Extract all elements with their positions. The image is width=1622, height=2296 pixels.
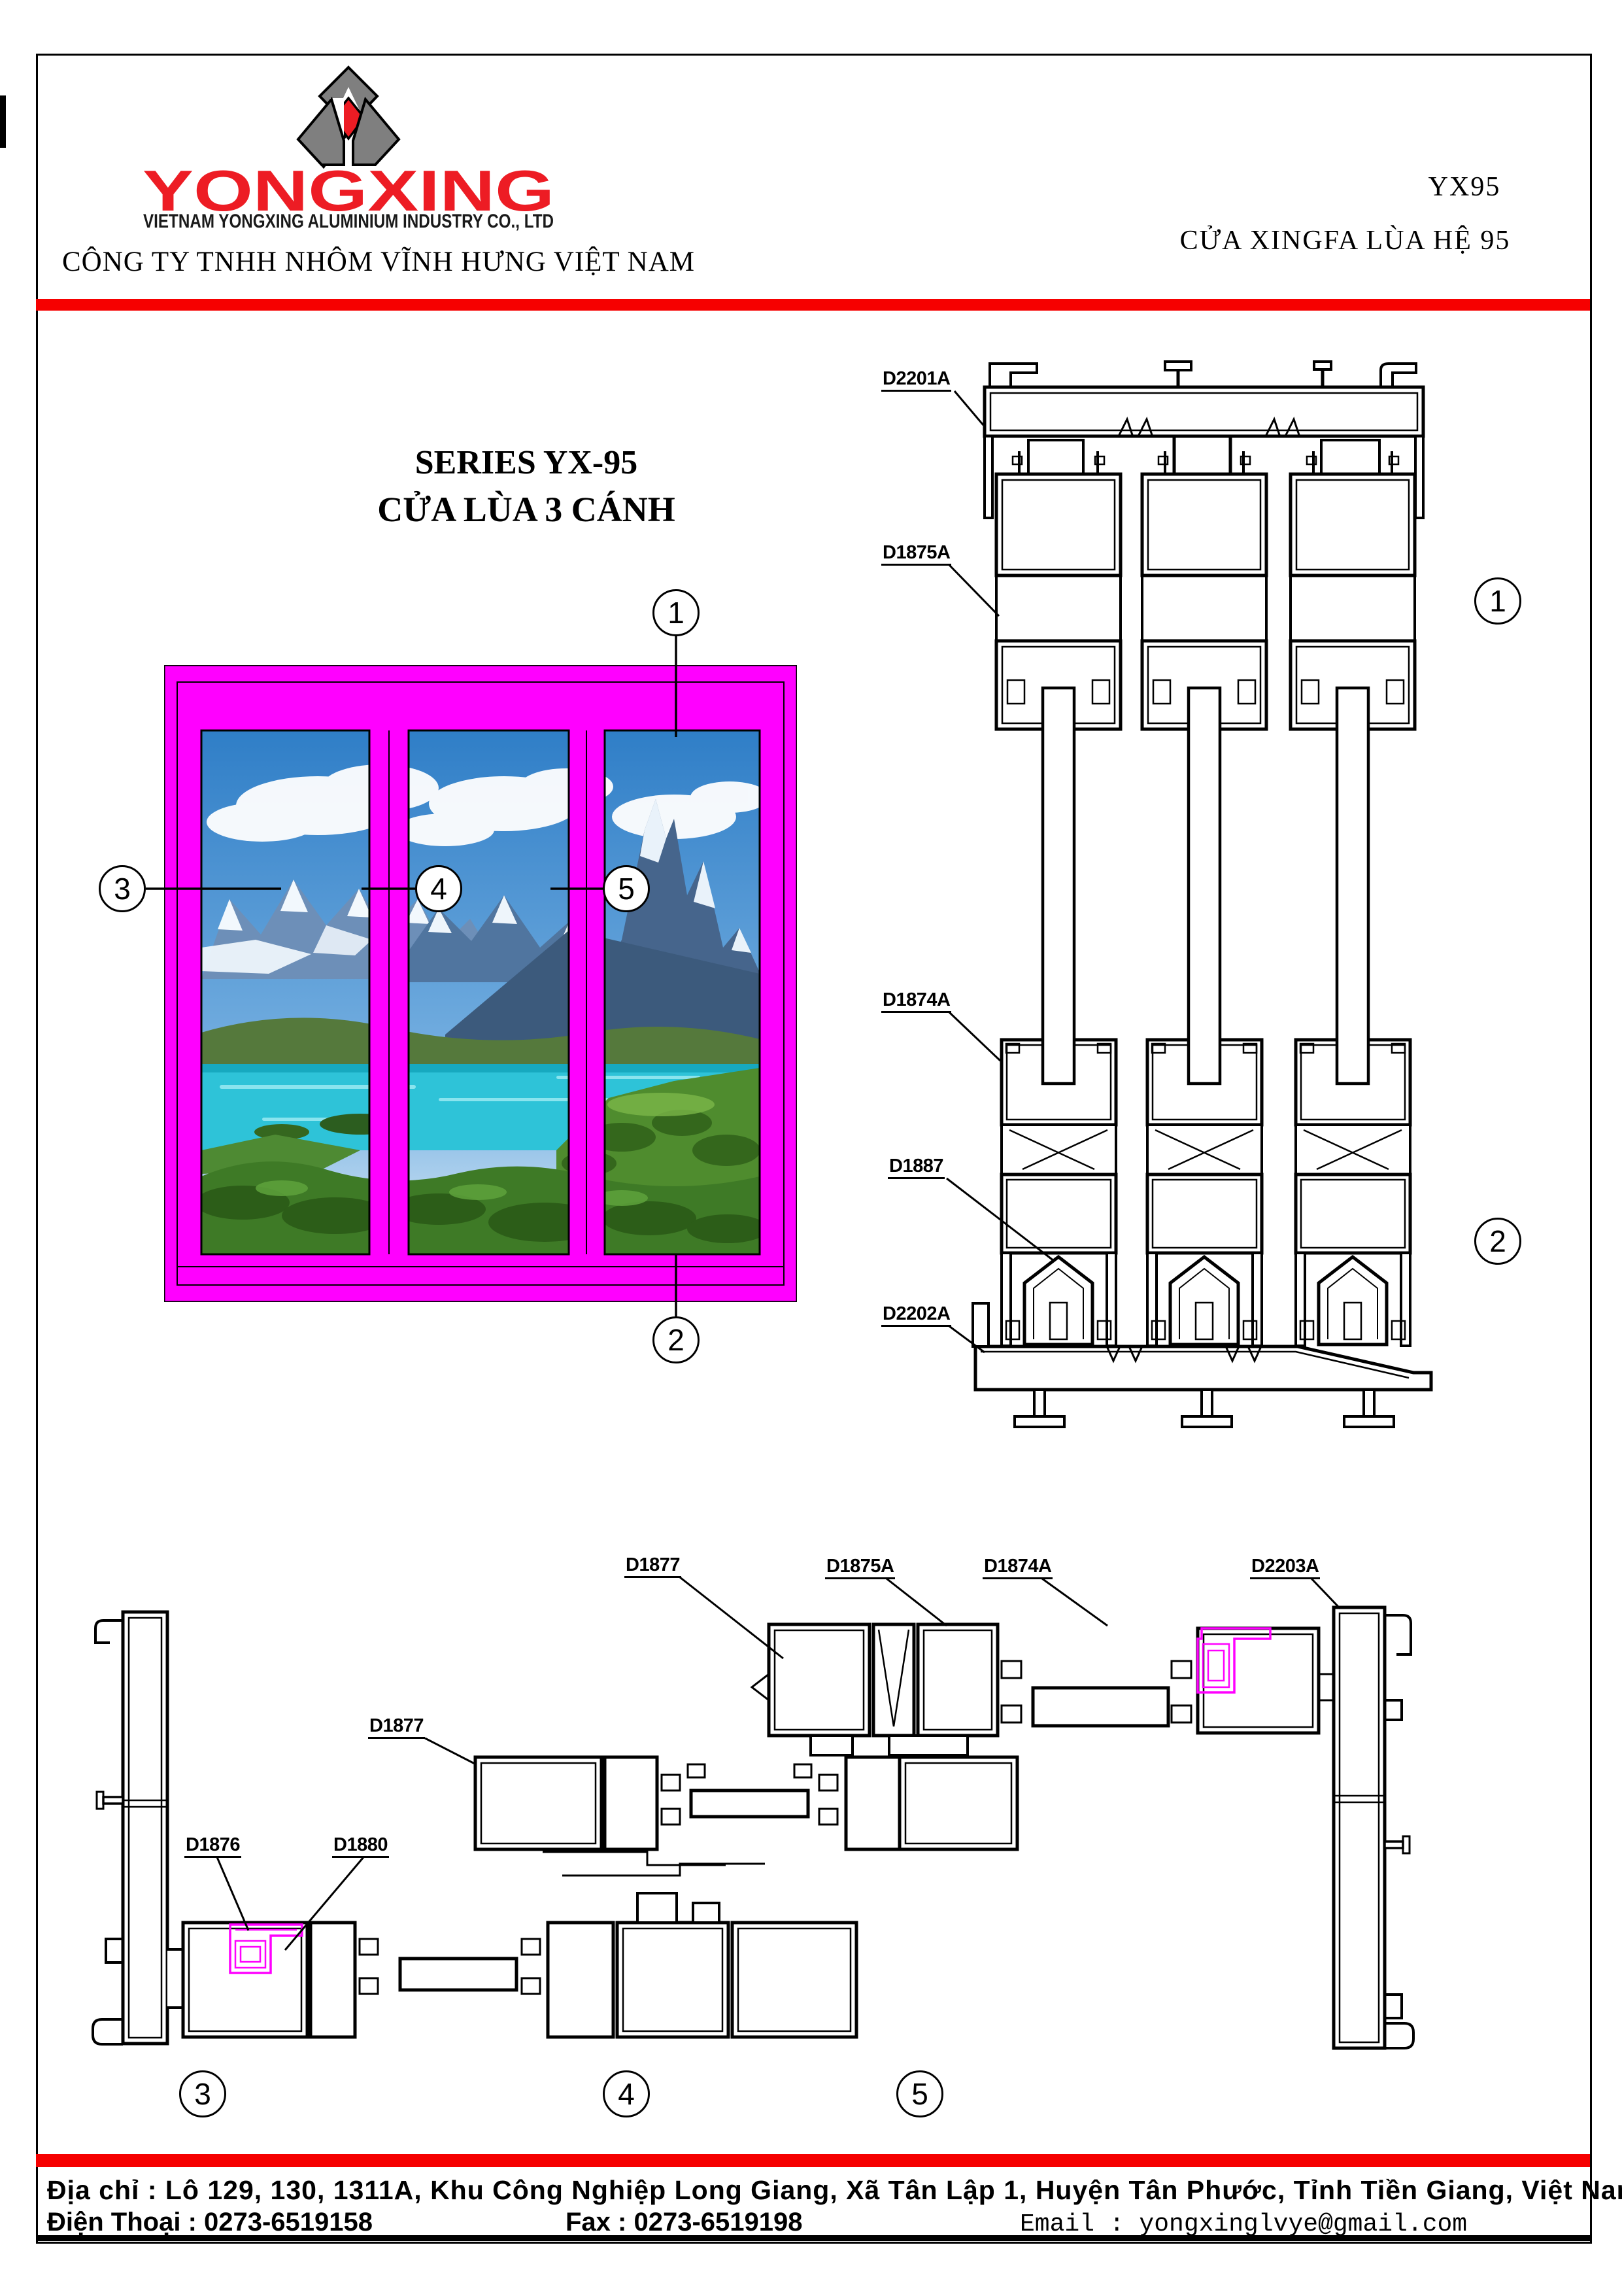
footer-address: Địa chỉ : Lô 129, 130, 1311A, Khu Công N… (47, 2175, 1622, 2206)
footer-rule (36, 2154, 1590, 2167)
label-d2203a: D2203A (1250, 1556, 1320, 1579)
label-d1877-plan-left: D1877 (368, 1716, 425, 1739)
footer-phone: Điện Thoại : 0273-6519158 (47, 2208, 373, 2237)
callout-4-section: 4 (603, 2070, 650, 2117)
footer-fax: Fax : 0273-6519198 (566, 2208, 803, 2237)
label-d1876: D1876 (184, 1835, 241, 1858)
label-d1877-plan-right: D1877 (624, 1555, 681, 1578)
callout-4-window: 4 (415, 865, 462, 912)
glass-panes (1043, 688, 1368, 1084)
sill-sash-profiles (1002, 1040, 1410, 1346)
callout-2-window: 2 (652, 1316, 700, 1363)
label-d1875a-head: D1875A (881, 543, 951, 566)
label-d1875a-plan: D1875A (825, 1556, 895, 1579)
footer-email: Email : yongxinglvye@gmail.com (1020, 2210, 1467, 2238)
label-d2202a: D2202A (881, 1304, 951, 1327)
catalog-page: YONGXING VIETNAM YONGXING ALUMINIUM INDU… (0, 0, 1622, 2296)
label-d1880: D1880 (332, 1835, 389, 1858)
callout-5-section: 5 (896, 2070, 943, 2117)
callout-1-window: 1 (652, 589, 700, 636)
label-d1887: D1887 (888, 1156, 945, 1179)
profile-drawings (0, 0, 1622, 2296)
label-d2201a: D2201A (881, 369, 951, 392)
callout-1-section: 1 (1474, 577, 1521, 625)
footer-bottom-line (36, 2235, 1590, 2241)
callout-2-section: 2 (1474, 1218, 1521, 1265)
callout-5-window: 5 (603, 865, 650, 912)
label-d1874a-plan: D1874A (983, 1556, 1053, 1579)
callout-3-section: 3 (179, 2070, 226, 2117)
label-d1874a-sill: D1874A (881, 990, 951, 1013)
callout-3-window: 3 (99, 865, 146, 912)
callout-leaders (146, 636, 676, 1317)
plan-section-drawing (93, 1607, 1413, 2048)
